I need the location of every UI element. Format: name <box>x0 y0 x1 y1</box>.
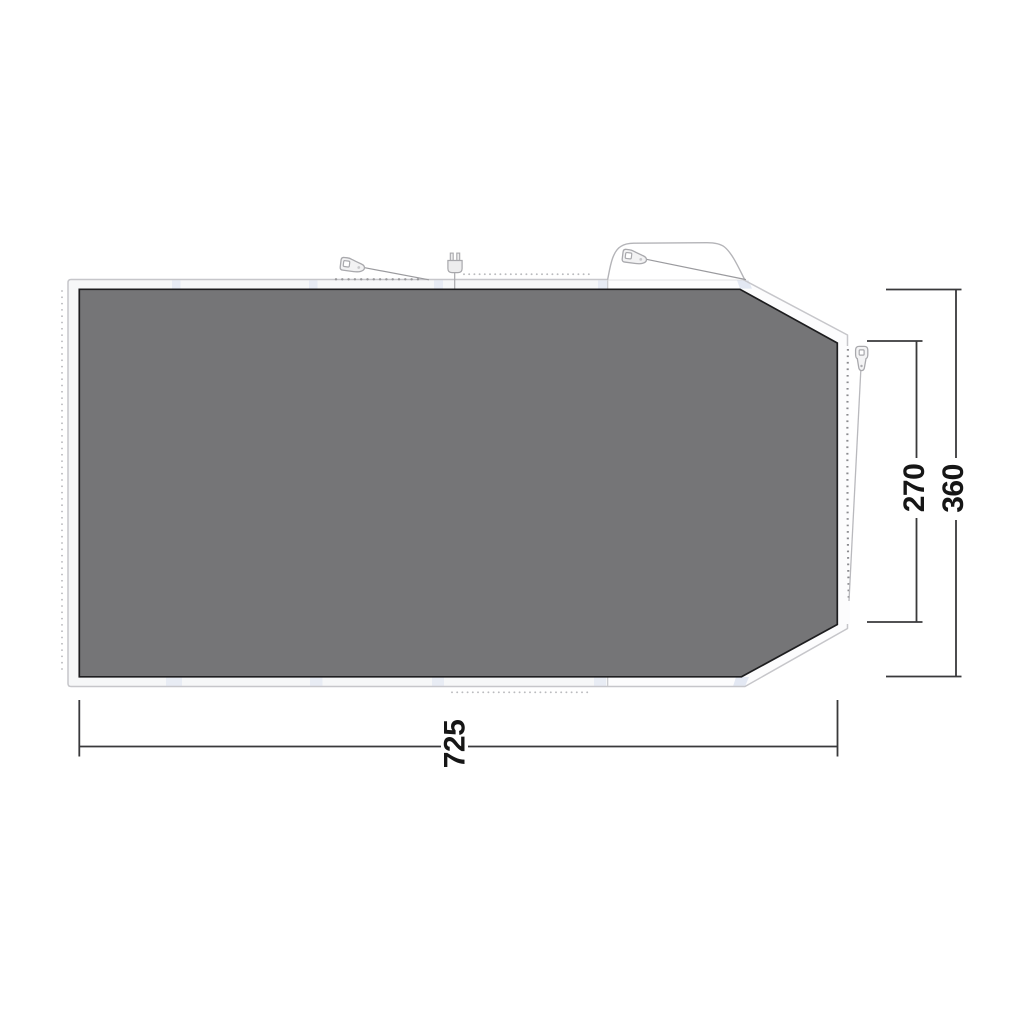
svg-text:360: 360 <box>937 464 970 513</box>
svg-text:270: 270 <box>898 464 931 513</box>
svg-text:725: 725 <box>439 720 472 769</box>
